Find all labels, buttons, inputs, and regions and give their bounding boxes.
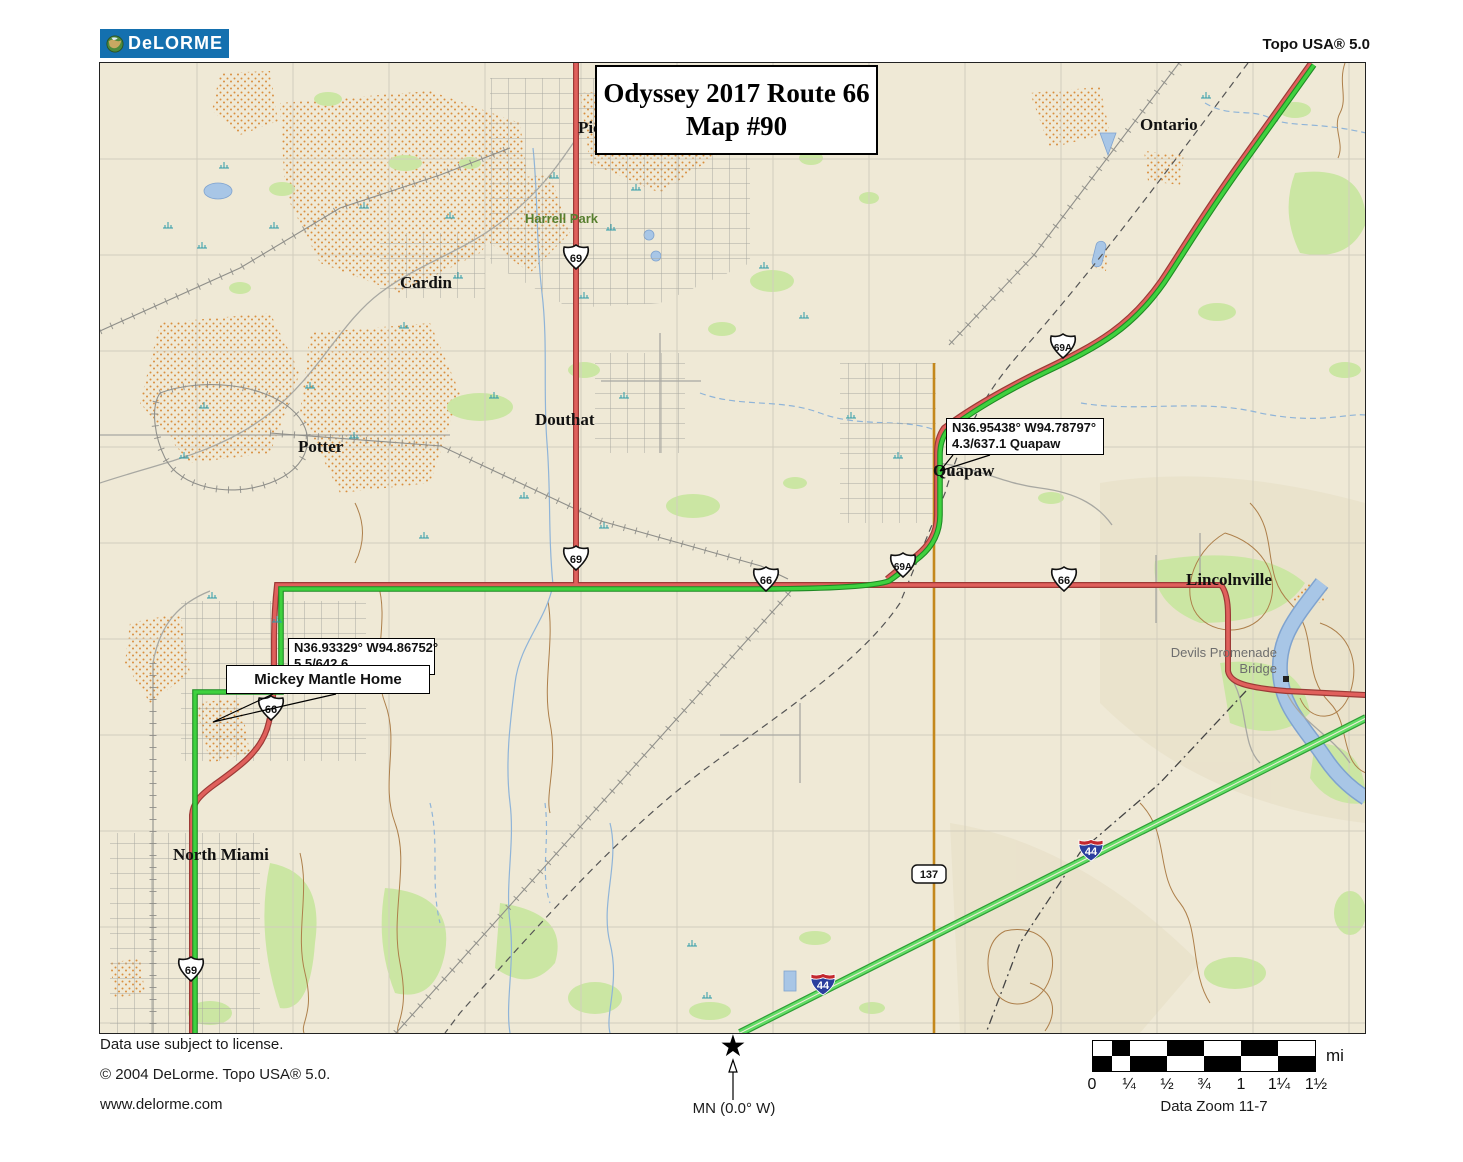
label-lincolnville: Lincolnville [1186,570,1272,589]
us69a-shield: 69A [1054,343,1072,354]
label-north-miami: North Miami [173,845,269,864]
us69-shield: 69 [570,554,582,566]
magnetic-north-label: MN (0.0° W) [688,1100,780,1117]
north-arrow: ★ [703,1030,763,1102]
us69-shield: 69 [570,253,582,265]
label-harrell-park: Harrell Park [525,211,599,226]
globe-icon [106,34,124,54]
label-potter: Potter [298,437,344,456]
label-cardin: Cardin [400,273,453,292]
label-bridge-1: Devils Promenade [1171,645,1277,660]
i44-shield: 44 [817,980,830,992]
map-title-line1: Odyssey 2017 Route 66 [603,77,869,110]
waypoint-callout-quapaw: N36.95438° W94.78797° 4.3/637.1 Quapaw [946,418,1104,455]
label-douthat: Douthat [535,410,595,429]
map-title-box: Odyssey 2017 Route 66 Map #90 [595,65,878,155]
data-zoom-label: Data Zoom 11-7 [1139,1098,1289,1115]
bridge-point [1283,676,1289,682]
label-ontario: Ontario [1140,115,1198,134]
sr137-shield: 137 [920,869,938,881]
waypoint-coordinates: N36.93329° W94.86752° [294,640,429,656]
label-bridge-2: Bridge [1239,661,1277,676]
page: { "header": { "logo_text": "DeLORME", "p… [0,0,1463,1162]
website-url: www.delorme.com [100,1096,223,1113]
waypoint-coordinates: N36.95438° W94.78797° [952,420,1098,436]
us69-shield: 69 [185,965,197,977]
map-title-line2: Map #90 [686,110,787,143]
us69a-shield: 69A [894,562,912,573]
us66-shield: 66 [760,575,772,587]
us66-shield: 66 [1058,575,1070,587]
copyright-text: © 2004 DeLorme. Topo USA® 5.0. [100,1066,330,1083]
product-title: Topo USA® 5.0 [1263,36,1370,53]
scale-tick: ½ [1160,1076,1173,1094]
scale-tick: ¼ [1122,1076,1135,1094]
poi-label: Mickey Mantle Home [254,672,402,688]
license-text: Data use subject to license. [100,1036,283,1053]
topo-map: 69 69 69 66 66 66 69A 69A 44 44 137 Pic … [100,63,1365,1033]
scale-bar [1092,1040,1316,1072]
i44-shield: 44 [1085,846,1098,858]
scale-tick: 0 [1088,1076,1097,1094]
scale-tick: 1½ [1305,1076,1327,1094]
north-star-icon: ★ [720,1030,747,1063]
scale-tick: ¾ [1197,1076,1210,1094]
delorme-logo: DeLORME [100,29,229,58]
scale-tick: 1¼ [1268,1076,1290,1094]
scale-tick: 1 [1237,1076,1246,1094]
waypoint-distance: 4.3/637.1 Quapaw [952,436,1098,452]
map-canvas[interactable]: 69 69 69 66 66 66 69A 69A 44 44 137 Pic … [99,62,1366,1034]
scale-unit: mi [1326,1046,1344,1066]
poi-callout-mickey-mantle: Mickey Mantle Home [226,665,430,694]
logo-text: DeLORME [128,33,223,54]
